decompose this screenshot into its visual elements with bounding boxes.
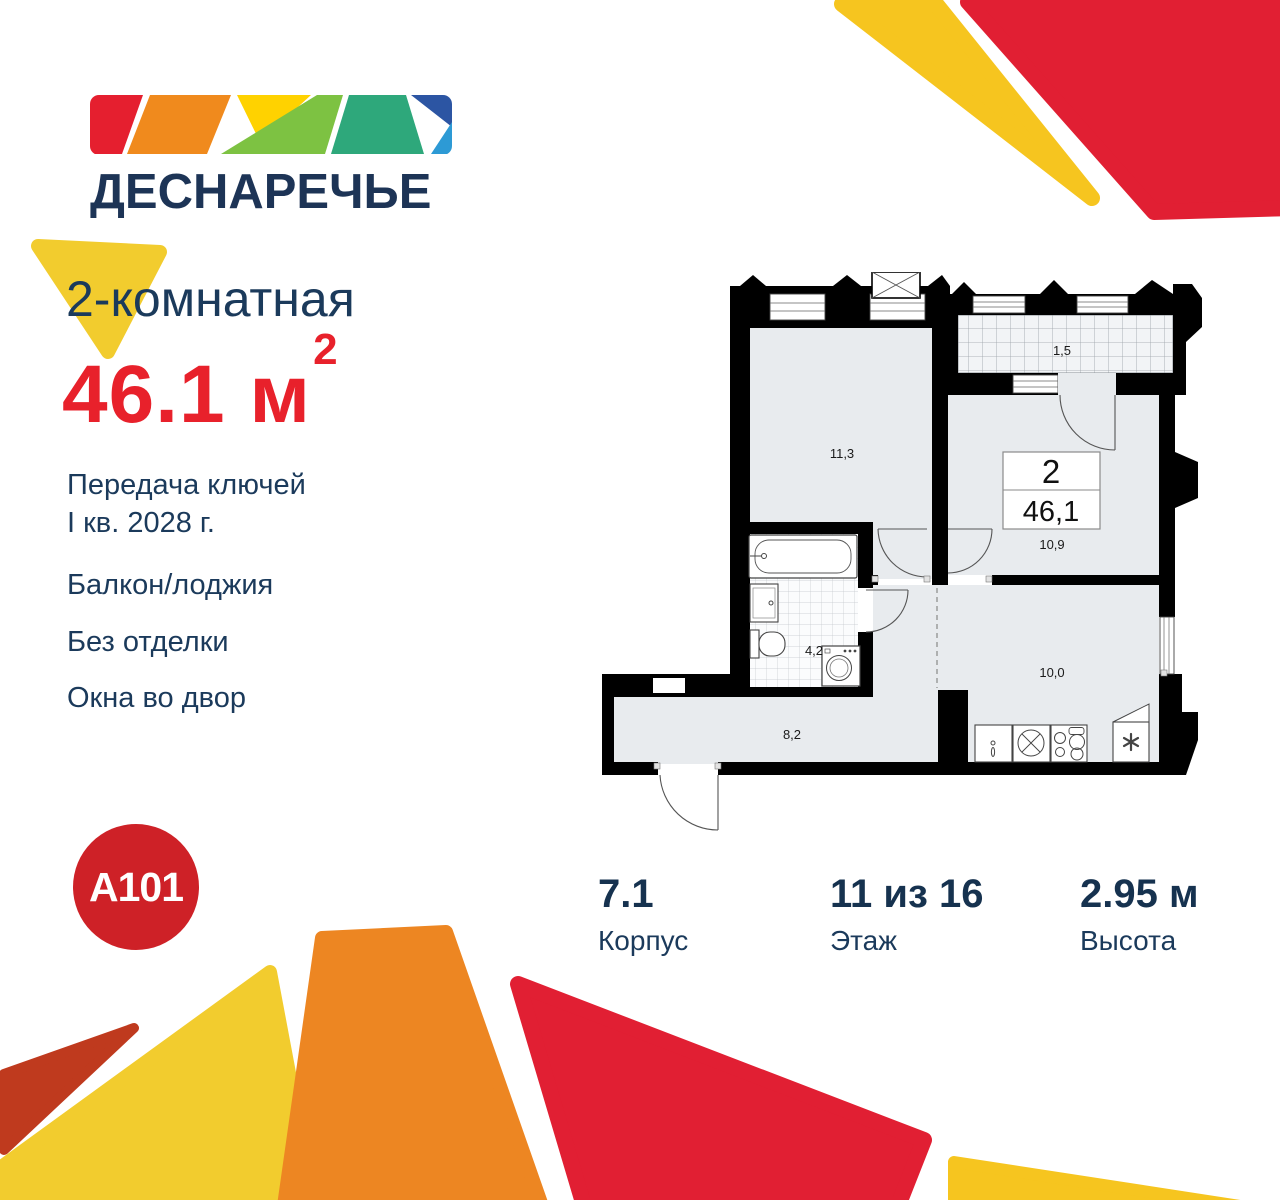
info-box-area: 46,1 — [1023, 496, 1079, 528]
listing-flyer: { "logo": { "name": "ДЕСНАРЕЧЬЕ" }, "lis… — [0, 0, 1280, 1200]
label-bedroom-area: 11,3 — [830, 446, 854, 461]
floor-plan: 2 46,1 11,3 1,5 10,9 4,2 10,0 8,2 — [590, 272, 1210, 892]
stat-building: 7.1 Корпус — [598, 872, 688, 957]
stat-height-value: 2.95 м — [1080, 872, 1199, 917]
bathtub-icon — [749, 535, 857, 578]
feature-windows: Окна во двор — [67, 679, 246, 717]
complex-logo: ДЕСНАРЕЧЬЕ — [90, 95, 470, 220]
info-box-rooms: 2 — [1042, 453, 1060, 490]
apartment-area: 46.1 м2 — [62, 348, 337, 442]
label-living-area: 10,9 — [1039, 537, 1064, 552]
toilet-icon — [750, 630, 759, 658]
feature-balcony: Балкон/лоджия — [67, 566, 273, 604]
feature-handover: Передача ключей I кв. 2028 г. — [67, 466, 306, 542]
wall-niche — [653, 678, 685, 693]
label-balcony-area: 1,5 — [1053, 343, 1071, 358]
logo-mosaic-icon — [90, 95, 452, 155]
label-hallway-area: 8,2 — [783, 727, 801, 742]
plan-info-box: 2 46,1 — [1003, 452, 1100, 529]
apartment-type-title: 2-комнатная — [66, 270, 355, 328]
feature-handover-line2: I кв. 2028 г. — [67, 504, 306, 542]
entrance-door — [660, 775, 718, 830]
stat-floor-value: 11 из 16 — [830, 872, 983, 917]
stat-height-label: Высота — [1080, 925, 1199, 957]
sink-icon — [750, 584, 778, 622]
decor-polygon-bottom-red — [518, 984, 924, 1200]
stat-height: 2.95 м Высота — [1080, 872, 1199, 957]
area-value: 46.1 — [62, 349, 226, 440]
feature-handover-line1: Передача ключей — [67, 466, 306, 504]
complex-name: ДЕСНАРЕЧЬЕ — [90, 164, 470, 220]
developer-logo: A101 — [73, 824, 199, 950]
stat-floor: 11 из 16 Этаж — [830, 872, 983, 957]
stat-floor-label: Этаж — [830, 925, 983, 957]
area-unit: м — [249, 349, 311, 440]
decor-triangle-bottom-right-yellow — [954, 1162, 1240, 1200]
balcony-door-opening — [1058, 373, 1116, 395]
label-kitchen-area: 10,0 — [1039, 665, 1064, 680]
stat-building-label: Корпус — [598, 925, 688, 957]
decor-trapezoid-bottom-orange — [284, 932, 542, 1200]
area-superscript: 2 — [313, 325, 338, 374]
developer-brand-name: A101 — [89, 864, 183, 911]
stat-building-value: 7.1 — [598, 872, 688, 917]
feature-finish: Без отделки — [67, 623, 229, 661]
label-bathroom-area: 4,2 — [805, 643, 823, 658]
